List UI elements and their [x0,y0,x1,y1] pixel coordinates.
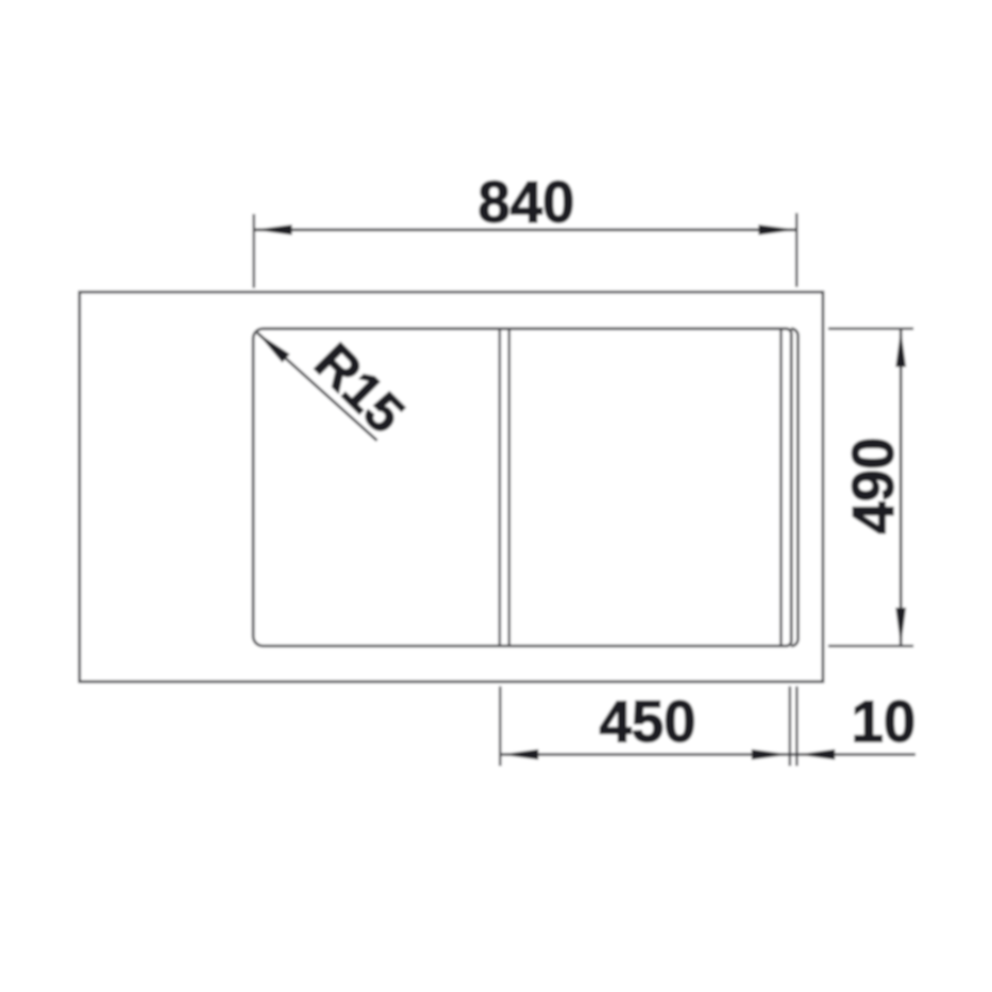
svg-text:490: 490 [841,437,906,534]
svg-text:840: 840 [478,170,575,235]
svg-text:10: 10 [851,690,916,755]
svg-text:450: 450 [599,690,696,755]
